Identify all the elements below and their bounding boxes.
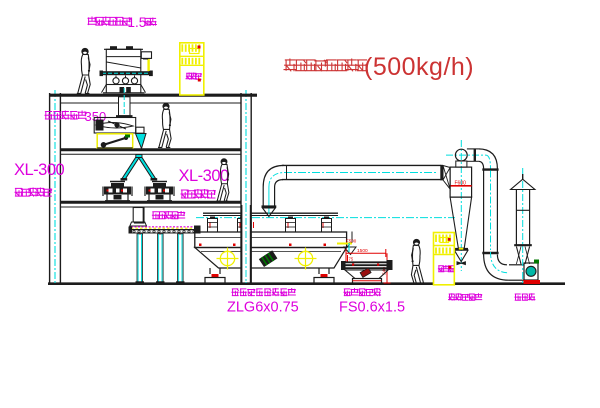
svg-text:XL-300: XL-300	[14, 161, 65, 179]
svg-text:F500: F500	[346, 239, 357, 244]
svg-text:1500: 1500	[357, 248, 368, 254]
svg-text:75: 75	[349, 257, 354, 262]
svg-text:FS0.6x1.5: FS0.6x1.5	[339, 300, 405, 316]
svg-text:(500kg/h): (500kg/h)	[364, 53, 474, 81]
svg-text:1.5: 1.5	[128, 15, 147, 30]
svg-text:ZLG6x0.75: ZLG6x0.75	[227, 300, 299, 316]
svg-text:F600: F600	[455, 180, 467, 186]
